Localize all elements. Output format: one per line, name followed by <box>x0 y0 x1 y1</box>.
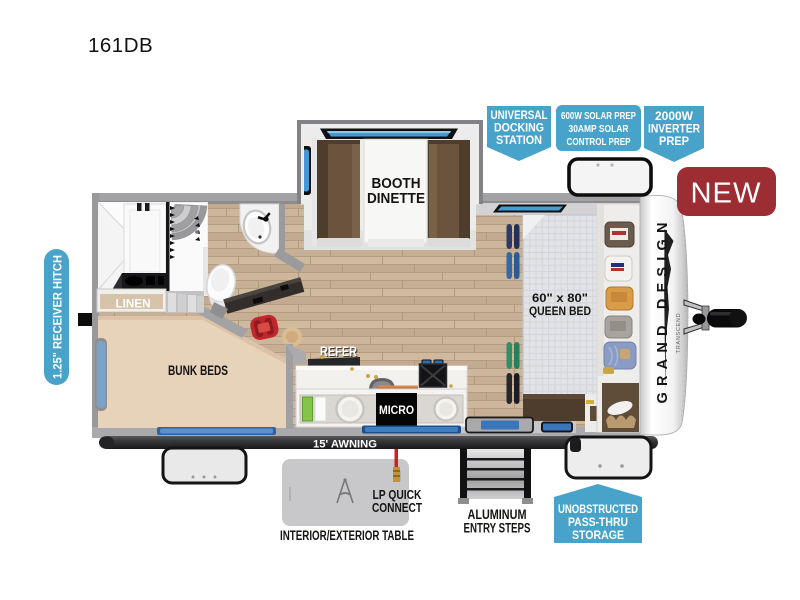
svg-text:DOCKING: DOCKING <box>494 123 544 135</box>
svg-text:DINETTE: DINETTE <box>367 191 425 207</box>
svg-text:15' AWNING: 15' AWNING <box>313 439 377 451</box>
svg-text:QUEEN BED: QUEEN BED <box>529 304 591 318</box>
svg-text:STATION: STATION <box>496 135 542 147</box>
svg-text:CONNECT: CONNECT <box>372 500 422 515</box>
svg-text:60" x 80": 60" x 80" <box>532 291 588 305</box>
svg-text:PASS-THRU: PASS-THRU <box>568 515 628 529</box>
svg-text:1.25" RECEIVER HITCH: 1.25" RECEIVER HITCH <box>51 255 65 379</box>
svg-text:INTERIOR/EXTERIOR TABLE: INTERIOR/EXTERIOR TABLE <box>280 528 414 543</box>
svg-text:INVERTER: INVERTER <box>648 124 701 136</box>
svg-text:REFER: REFER <box>320 344 357 359</box>
svg-text:BOOTH: BOOTH <box>372 176 421 192</box>
svg-text:30AMP SOLAR: 30AMP SOLAR <box>569 123 629 135</box>
svg-text:PREP: PREP <box>659 136 689 148</box>
svg-text:ENTRY STEPS: ENTRY STEPS <box>464 521 531 536</box>
svg-text:UNIVERSAL: UNIVERSAL <box>491 110 548 122</box>
svg-text:600W SOLAR PREP: 600W SOLAR PREP <box>561 110 636 122</box>
svg-text:NEW: NEW <box>691 178 762 210</box>
svg-text:2000W: 2000W <box>655 111 693 123</box>
svg-text:MICRO: MICRO <box>379 405 414 417</box>
svg-text:TRANSCEND: TRANSCEND <box>676 313 682 354</box>
svg-text:LINEN: LINEN <box>116 297 151 311</box>
svg-text:UNOBSTRUCTED: UNOBSTRUCTED <box>558 502 638 516</box>
svg-text:161DB: 161DB <box>88 34 153 57</box>
svg-text:BUNK BEDS: BUNK BEDS <box>168 363 228 378</box>
svg-text:CONTROL PREP: CONTROL PREP <box>567 136 631 148</box>
svg-text:STORAGE: STORAGE <box>572 528 624 542</box>
